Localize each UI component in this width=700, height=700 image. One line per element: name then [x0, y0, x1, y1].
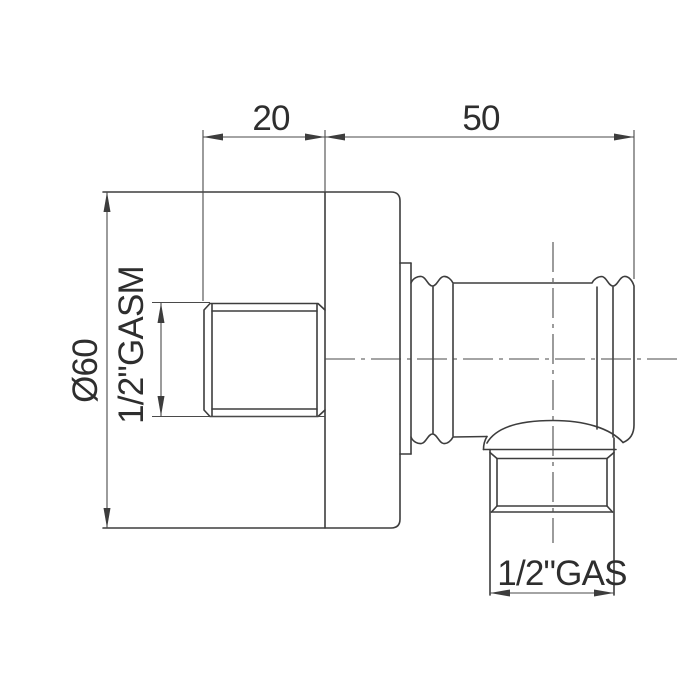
- dim-label-barrel-length: 50: [462, 99, 500, 138]
- arrowhead-d60-top: [104, 192, 111, 212]
- arrowhead-50-right: [614, 134, 634, 141]
- dim-label-inlet-thread: 1/2"GASM: [112, 266, 151, 424]
- outlet-dome-arch: [487, 421, 623, 444]
- nozzle-top-bevel-left: [490, 453, 497, 459]
- inlet-square-outline: [204, 304, 325, 417]
- arrowhead-d60-bottom: [104, 508, 111, 528]
- arrowhead-20-left: [203, 134, 223, 141]
- dimension-system: [104, 130, 635, 597]
- dim-label-outlet-thread: 1/2"GAS: [497, 554, 626, 593]
- technical-drawing-canvas: 20 50 Ø60 1/2"GASM 1/2"GAS: [0, 0, 700, 700]
- arrowhead-gasm-bottom: [158, 396, 165, 416]
- nozzle-bottom-bevel-left: [492, 506, 498, 512]
- arrowhead-gasm-top: [158, 303, 165, 323]
- nozzle-top-bevel-right: [607, 453, 614, 459]
- arrowhead-50-left: [325, 134, 345, 141]
- nozzle-bottom-bevel-right: [607, 506, 613, 512]
- barrel-bottom-profile: [411, 434, 487, 444]
- arrowhead-20-right: [305, 134, 325, 141]
- dimension-labels: 20 50 Ø60 1/2"GASM 1/2"GAS: [66, 99, 627, 593]
- dim-label-protrusion: 20: [252, 99, 290, 138]
- fitting-drawing: 20 50 Ø60 1/2"GASM 1/2"GAS: [0, 0, 700, 700]
- dim-label-flange-diameter: Ø60: [66, 339, 105, 403]
- part-outline: [103, 192, 634, 595]
- centerlines: [325, 242, 681, 543]
